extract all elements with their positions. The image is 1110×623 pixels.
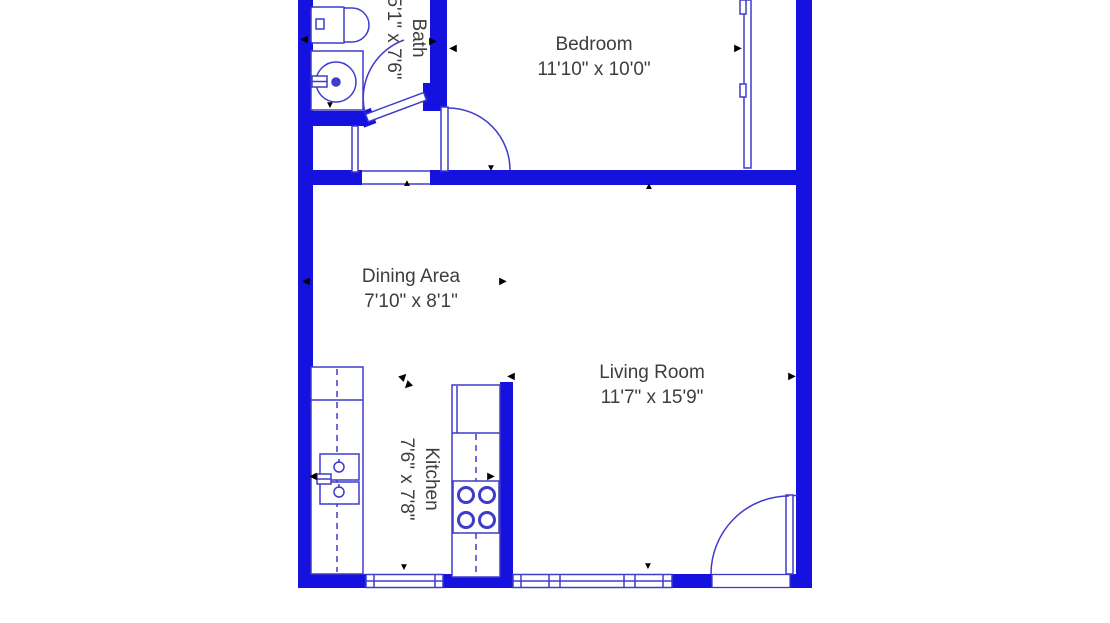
bath-label-group: Bath 5'1" x 7'6" xyxy=(381,0,431,80)
wall-bottom-1 xyxy=(298,574,366,588)
stove-icon xyxy=(453,481,499,533)
measure-arrow-left-icon: ◀ xyxy=(302,277,310,287)
dining-label-group: Dining Area 7'10" x 8'1" xyxy=(362,264,460,314)
kitchen-dimensions: 7'6" x 7'8" xyxy=(394,437,419,520)
wall-bottom-4 xyxy=(790,574,812,588)
kitchen-label-group: Kitchen 7'6" x 7'8" xyxy=(394,437,444,520)
wall-right xyxy=(796,0,812,588)
bath-dimensions: 5'1" x 7'6" xyxy=(381,0,406,80)
bath-label: Bath xyxy=(406,0,431,80)
measure-arrow-right-icon: ▶ xyxy=(734,44,742,54)
living-dimensions: 11'7" x 15'9" xyxy=(599,385,705,410)
wall-bath-south xyxy=(298,111,366,126)
bedroom-door-icon xyxy=(441,107,510,171)
kitchen-window-icon xyxy=(366,575,443,588)
measure-arrow-right-icon: ▶ xyxy=(788,372,796,382)
wall-bottom-3 xyxy=(672,574,712,588)
measure-arrow-down-icon: ▼ xyxy=(643,562,653,572)
dining-label: Dining Area xyxy=(362,264,460,289)
measure-arrow-right-icon: ▶ xyxy=(487,472,495,482)
living-label-group: Living Room 11'7" x 15'9" xyxy=(599,360,705,410)
bedroom-label-group: Bedroom 11'10" x 10'0" xyxy=(537,32,650,82)
kitchen-label: Kitchen xyxy=(419,437,444,520)
toilet-icon xyxy=(311,7,369,43)
measure-arrow-down-icon: ▼ xyxy=(399,563,409,573)
measure-arrow-up-icon: ▲ xyxy=(402,179,412,189)
measure-arrow-right-icon: ▶ xyxy=(429,37,437,47)
measure-arrow-left-icon: ◀ xyxy=(309,472,317,482)
measure-arrow-left-icon: ◀ xyxy=(300,35,308,45)
closet-partition xyxy=(352,126,358,172)
bedroom-window-icon xyxy=(740,0,751,168)
measure-arrow-left-icon: ◀ xyxy=(507,372,515,382)
measure-arrow-left-icon: ◀ xyxy=(449,44,457,54)
partitions xyxy=(352,126,430,184)
wall-kitchen-divider xyxy=(500,382,513,588)
bathroom-sink-icon xyxy=(311,51,363,110)
floor-plan: Bath 5'1" x 7'6" Bedroom 11'10" x 10'0" … xyxy=(0,0,1110,623)
dining-dimensions: 7'10" x 8'1" xyxy=(362,289,460,314)
bath-fixtures xyxy=(311,7,369,110)
floor-plan-drawing xyxy=(0,0,1110,623)
measure-arrow-down-icon: ▼ xyxy=(486,164,496,174)
measure-arrow-right-icon: ▶ xyxy=(499,277,507,287)
kitchen-sink-icon xyxy=(317,454,359,504)
measure-arrow-down-icon: ▼ xyxy=(325,101,335,111)
bedroom-label: Bedroom xyxy=(537,32,650,57)
living-label: Living Room xyxy=(599,360,705,385)
bedroom-dimensions: 11'10" x 10'0" xyxy=(537,57,650,82)
entry-door-icon xyxy=(711,495,797,588)
living-room-window-icon xyxy=(513,575,672,588)
measure-arrow-up-icon: ▲ xyxy=(644,182,654,192)
